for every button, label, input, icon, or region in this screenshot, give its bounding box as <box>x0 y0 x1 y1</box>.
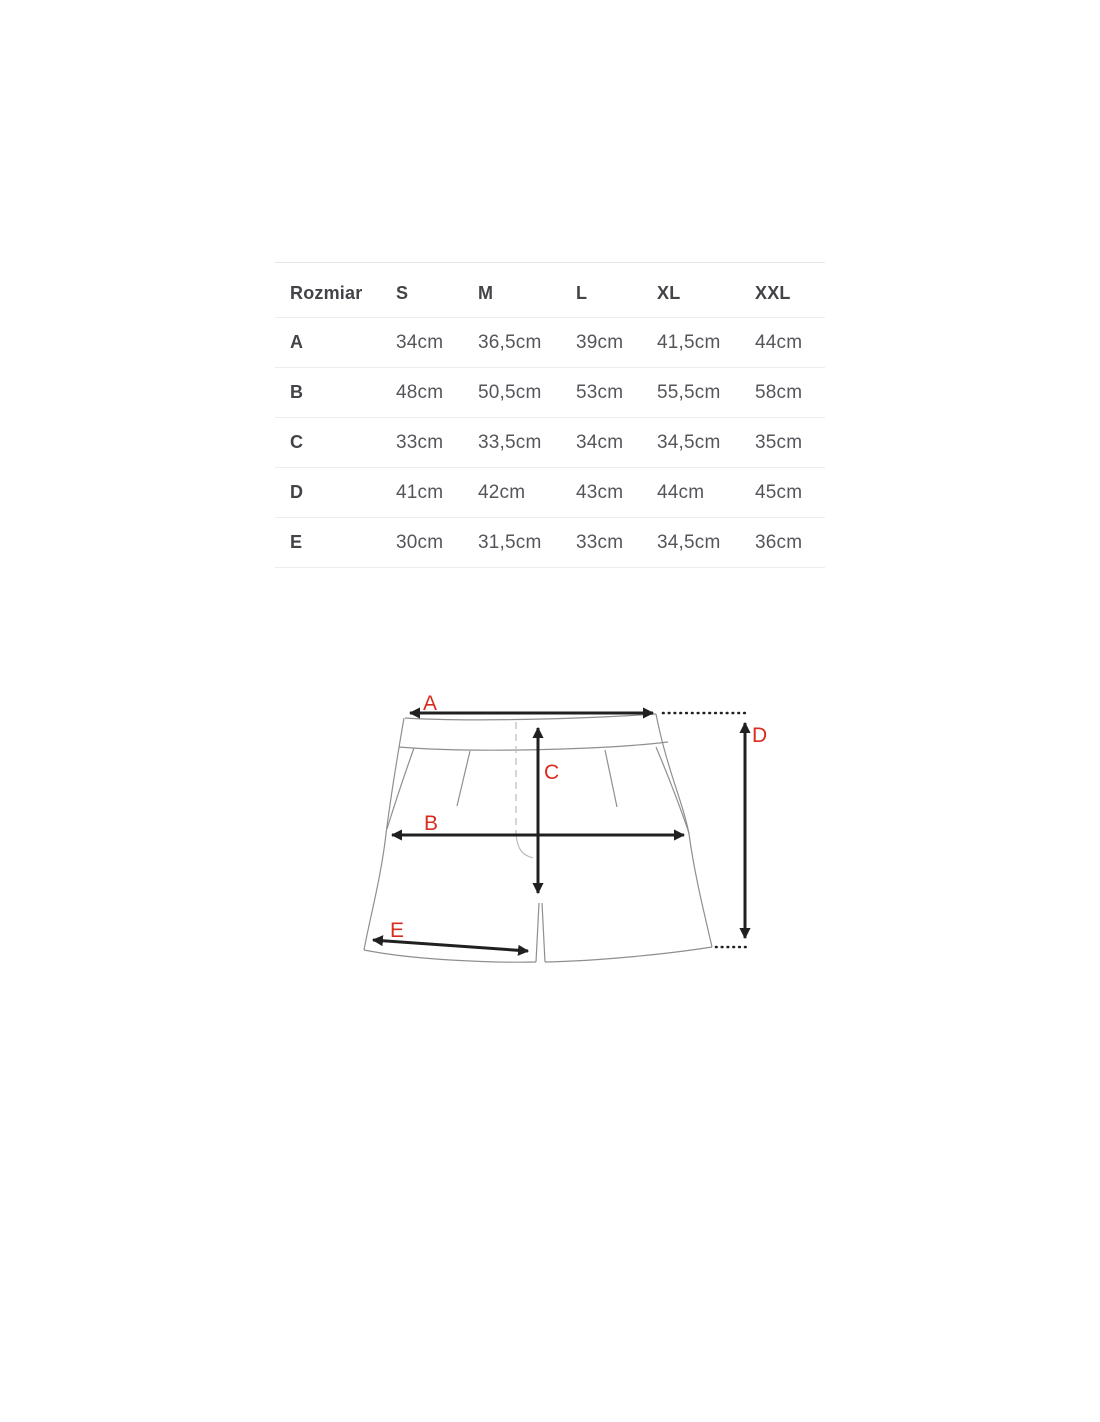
measurement-value: 41cm <box>396 482 478 504</box>
column-header: XXL <box>755 283 825 304</box>
label-e: E <box>390 919 404 942</box>
measurement-value: 31,5cm <box>478 532 576 554</box>
row-label: B <box>275 382 396 403</box>
column-header: XL <box>657 283 755 304</box>
column-header: S <box>396 283 478 304</box>
column-header: L <box>576 283 657 304</box>
waistband-bottom-edge <box>399 742 668 750</box>
fly-curve <box>516 833 533 858</box>
left-pleat-line <box>457 751 470 806</box>
measurement-value: 34,5cm <box>657 432 755 454</box>
measurement-value: 36,5cm <box>478 332 576 354</box>
measurement-value: 36cm <box>755 532 825 554</box>
table-row: E 30cm 31,5cm 33cm 34,5cm 36cm <box>275 518 825 568</box>
label-b: B <box>424 812 438 835</box>
measurement-value: 45cm <box>755 482 825 504</box>
measurement-value: 34cm <box>576 432 657 454</box>
right-pleat-line <box>605 750 617 807</box>
measurement-value: 50,5cm <box>478 382 576 404</box>
measurement-value: 42cm <box>478 482 576 504</box>
left-leg-hem <box>364 950 536 962</box>
table-row: A 34cm 36,5cm 39cm 41,5cm 44cm <box>275 318 825 368</box>
measurement-value: 34,5cm <box>657 532 755 554</box>
measurement-value: 30cm <box>396 532 478 554</box>
measurement-value: 35cm <box>755 432 825 454</box>
measurement-value: 33cm <box>396 432 478 454</box>
row-label: A <box>275 332 396 353</box>
right-leg-hem <box>545 947 712 962</box>
row-label: C <box>275 432 396 453</box>
size-chart-page: Rozmiar S M L XL XXL A 34cm 36,5cm 39cm … <box>0 0 1100 1422</box>
label-d: D <box>752 724 767 747</box>
measurement-value: 48cm <box>396 382 478 404</box>
column-header: Rozmiar <box>275 283 396 304</box>
left-pocket-line <box>387 748 414 829</box>
measurement-value: 44cm <box>657 482 755 504</box>
measurement-value: 53cm <box>576 382 657 404</box>
column-header: M <box>478 283 576 304</box>
table-row: D 41cm 42cm 43cm 44cm 45cm <box>275 468 825 518</box>
measurement-value: 41,5cm <box>657 332 755 354</box>
measurement-value: 34cm <box>396 332 478 354</box>
table-row: B 48cm 50,5cm 53cm 55,5cm 58cm <box>275 368 825 418</box>
measurement-value: 44cm <box>755 332 825 354</box>
measurement-value: 55,5cm <box>657 382 755 404</box>
label-c: C <box>544 761 559 784</box>
label-a: A <box>423 692 437 715</box>
row-label: E <box>275 532 396 553</box>
right-side-seam <box>656 714 712 947</box>
left-inseam <box>536 903 539 962</box>
table-row: C 33cm 33,5cm 34cm 34,5cm 35cm <box>275 418 825 468</box>
size-table: Rozmiar S M L XL XXL A 34cm 36,5cm 39cm … <box>275 262 825 568</box>
waistband-top-edge <box>405 714 656 720</box>
right-inseam <box>542 903 545 962</box>
row-label: D <box>275 482 396 503</box>
right-pocket-line <box>656 747 689 833</box>
measurement-value: 58cm <box>755 382 825 404</box>
measurement-value: 43cm <box>576 482 657 504</box>
size-table-header-row: Rozmiar S M L XL XXL <box>275 263 825 318</box>
measurement-value: 33,5cm <box>478 432 576 454</box>
measurement-value: 39cm <box>576 332 657 354</box>
measurement-value: 33cm <box>576 532 657 554</box>
shorts-measurement-diagram: A B C D E <box>340 680 770 980</box>
